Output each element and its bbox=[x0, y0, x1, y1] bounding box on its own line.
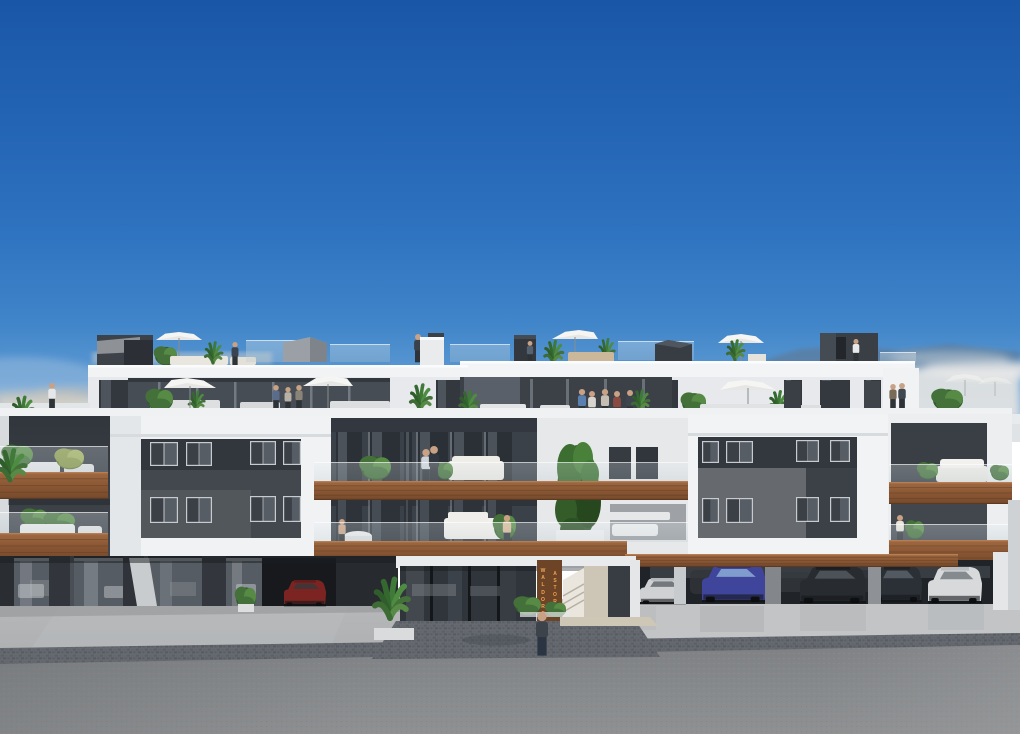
svg-text:D: D bbox=[541, 590, 545, 596]
svg-text:A: A bbox=[553, 571, 557, 577]
svg-text:L: L bbox=[541, 582, 544, 588]
svg-text:T: T bbox=[553, 585, 556, 591]
svg-text:O: O bbox=[541, 597, 545, 603]
svg-text:R: R bbox=[541, 604, 545, 610]
svg-text:O: O bbox=[553, 592, 557, 598]
svg-text:A: A bbox=[541, 575, 545, 581]
svg-text:W: W bbox=[541, 568, 546, 574]
